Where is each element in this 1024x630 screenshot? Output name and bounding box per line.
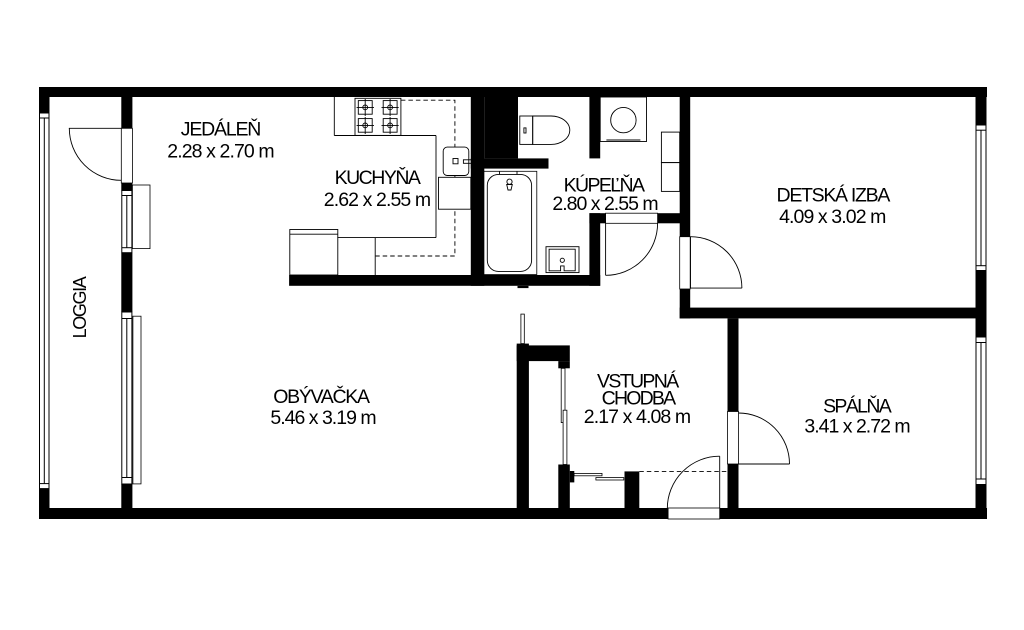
svg-text:LOGGIA: LOGGIA xyxy=(70,276,90,338)
svg-text:OBÝVAČKA: OBÝVAČKA xyxy=(273,385,370,408)
svg-text:4.09 x 3.02 m: 4.09 x 3.02 m xyxy=(779,206,885,228)
svg-text:JEDÁLEŇ: JEDÁLEŇ xyxy=(181,118,260,141)
svg-text:5.46 x 3.19 m: 5.46 x 3.19 m xyxy=(270,407,375,429)
svg-text:SPÁLŇA: SPÁLŇA xyxy=(823,395,892,418)
svg-text:2.17 x 4.08 m: 2.17 x 4.08 m xyxy=(584,406,690,428)
svg-text:3.41 x 2.72 m: 3.41 x 2.72 m xyxy=(804,416,909,438)
svg-text:2.80 x 2.55 m: 2.80 x 2.55 m xyxy=(552,193,657,215)
svg-text:KUCHYŇA: KUCHYŇA xyxy=(335,166,421,189)
svg-text:2.28 x 2.70 m: 2.28 x 2.70 m xyxy=(167,141,273,163)
svg-text:2.62 x 2.55 m: 2.62 x 2.55 m xyxy=(324,189,430,211)
svg-text:DETSKÁ IZBA: DETSKÁ IZBA xyxy=(777,183,891,206)
